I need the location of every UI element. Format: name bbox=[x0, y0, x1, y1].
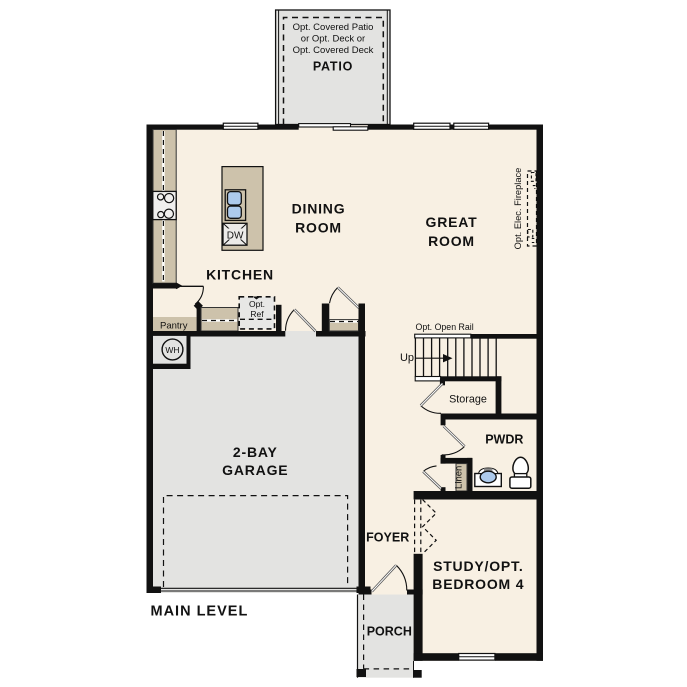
svg-text:GARAGE: GARAGE bbox=[222, 462, 288, 478]
svg-text:Ref: Ref bbox=[250, 309, 264, 319]
svg-text:Opt.: Opt. bbox=[249, 299, 265, 309]
svg-text:Opt. Covered Patio: Opt. Covered Patio bbox=[293, 22, 374, 33]
svg-text:Linen: Linen bbox=[454, 466, 465, 489]
svg-text:Up: Up bbox=[400, 352, 414, 364]
svg-text:ROOM: ROOM bbox=[295, 220, 342, 236]
svg-text:Opt. Open Rail: Opt. Open Rail bbox=[416, 322, 474, 332]
svg-text:WH: WH bbox=[165, 345, 179, 355]
svg-text:PATIO: PATIO bbox=[313, 60, 353, 74]
svg-text:Opt. Covered Deck: Opt. Covered Deck bbox=[293, 45, 374, 56]
svg-text:MAIN LEVEL: MAIN LEVEL bbox=[151, 604, 249, 620]
svg-text:BEDROOM 4: BEDROOM 4 bbox=[432, 576, 524, 592]
svg-text:PWDR: PWDR bbox=[485, 433, 523, 447]
svg-text:ROOM: ROOM bbox=[428, 233, 475, 249]
svg-text:DW: DW bbox=[227, 230, 244, 241]
svg-text:PORCH: PORCH bbox=[367, 625, 412, 639]
svg-text:FOYER: FOYER bbox=[366, 531, 409, 545]
svg-text:Storage: Storage bbox=[449, 394, 487, 406]
svg-text:KITCHEN: KITCHEN bbox=[206, 267, 274, 283]
svg-text:Opt. Elec. Fireplace: Opt. Elec. Fireplace bbox=[513, 168, 523, 250]
svg-text:GREAT: GREAT bbox=[426, 214, 478, 230]
svg-text:DINING: DINING bbox=[292, 201, 346, 217]
svg-text:Pantry: Pantry bbox=[160, 321, 188, 332]
svg-text:STUDY/OPT.: STUDY/OPT. bbox=[433, 558, 523, 574]
svg-text:or Opt. Deck or: or Opt. Deck or bbox=[301, 34, 365, 45]
svg-text:2-BAY: 2-BAY bbox=[233, 444, 278, 460]
